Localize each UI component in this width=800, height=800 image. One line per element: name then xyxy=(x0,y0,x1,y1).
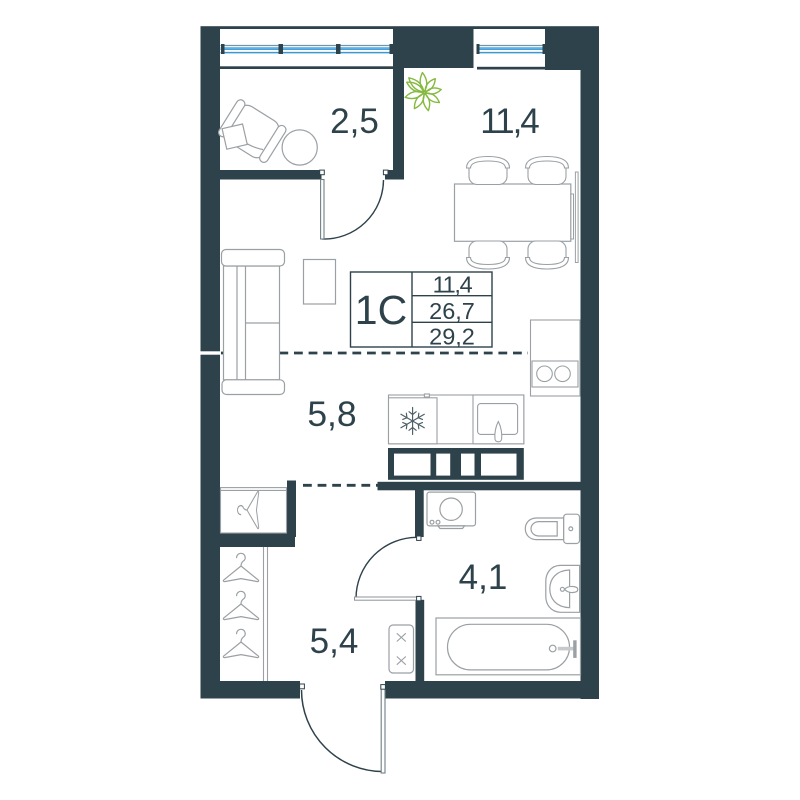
svg-text:11,4: 11,4 xyxy=(433,271,473,297)
svg-text:29,2: 29,2 xyxy=(429,324,475,350)
svg-text:2,5: 2,5 xyxy=(330,102,379,141)
svg-text:5,8: 5,8 xyxy=(307,394,356,434)
svg-text:1С: 1С xyxy=(355,287,407,333)
svg-text:11,4: 11,4 xyxy=(480,102,539,141)
svg-text:5,4: 5,4 xyxy=(310,622,359,661)
svg-text:4,1: 4,1 xyxy=(459,558,508,597)
svg-text:26,7: 26,7 xyxy=(429,298,475,324)
